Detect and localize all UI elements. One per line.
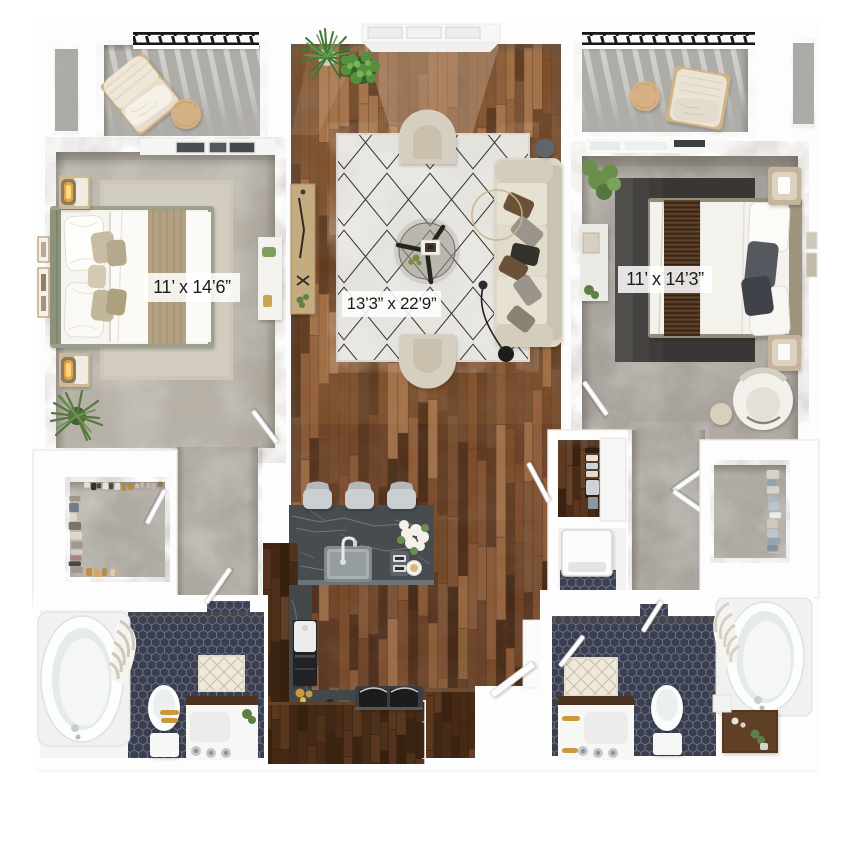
svg-text:11’ x 14’3”: 11’ x 14’3” — [626, 269, 704, 289]
svg-text:11’ x 14’6”: 11’ x 14’6” — [153, 277, 231, 297]
svg-text:13’3” x 22’9”: 13’3” x 22’9” — [347, 294, 437, 313]
